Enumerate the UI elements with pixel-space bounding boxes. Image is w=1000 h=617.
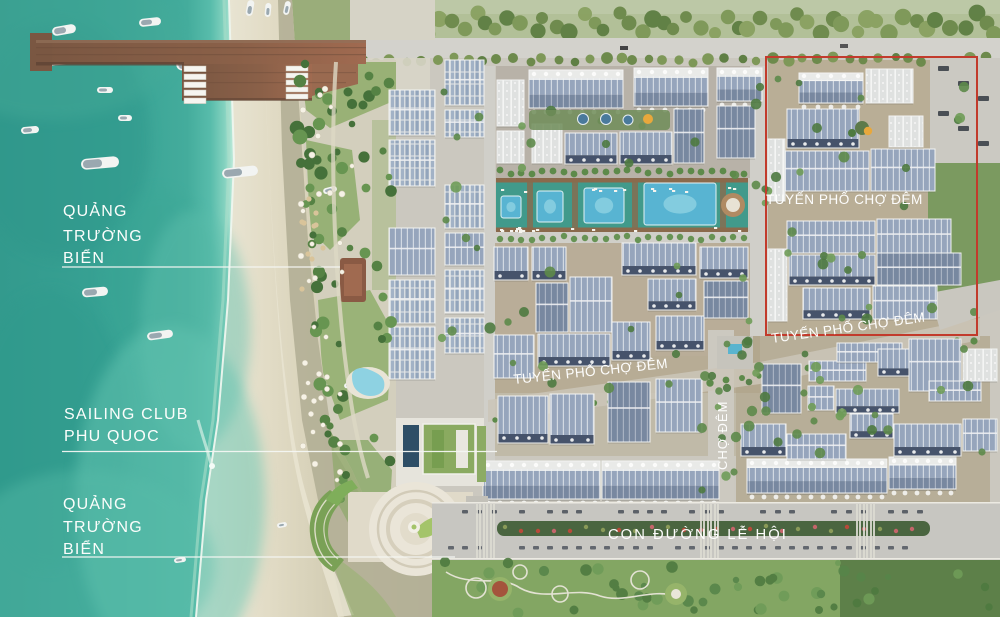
svg-text:BIỂN: BIỂN [63,248,105,267]
svg-text:TRƯỜNG: TRƯỜNG [63,226,143,245]
svg-text:TUYẾN PHỐ CHỢ ĐÊM: TUYẾN PHỐ CHỢ ĐÊM [766,192,923,207]
svg-text:QUẢNG: QUẢNG [63,494,128,513]
svg-text:TRƯỜNG: TRƯỜNG [63,517,143,536]
svg-text:BIỂN: BIỂN [63,539,105,558]
svg-text:QUẢNG: QUẢNG [63,201,128,220]
svg-text:PHU QUOC: PHU QUOC [64,428,160,445]
svg-text:CHỢ ĐÊM: CHỢ ĐÊM [715,401,730,470]
svg-text:SAILING CLUB: SAILING CLUB [64,406,189,423]
svg-text:CON ĐƯỜNG LỄ HỘI: CON ĐƯỜNG LỄ HỘI [608,526,788,543]
